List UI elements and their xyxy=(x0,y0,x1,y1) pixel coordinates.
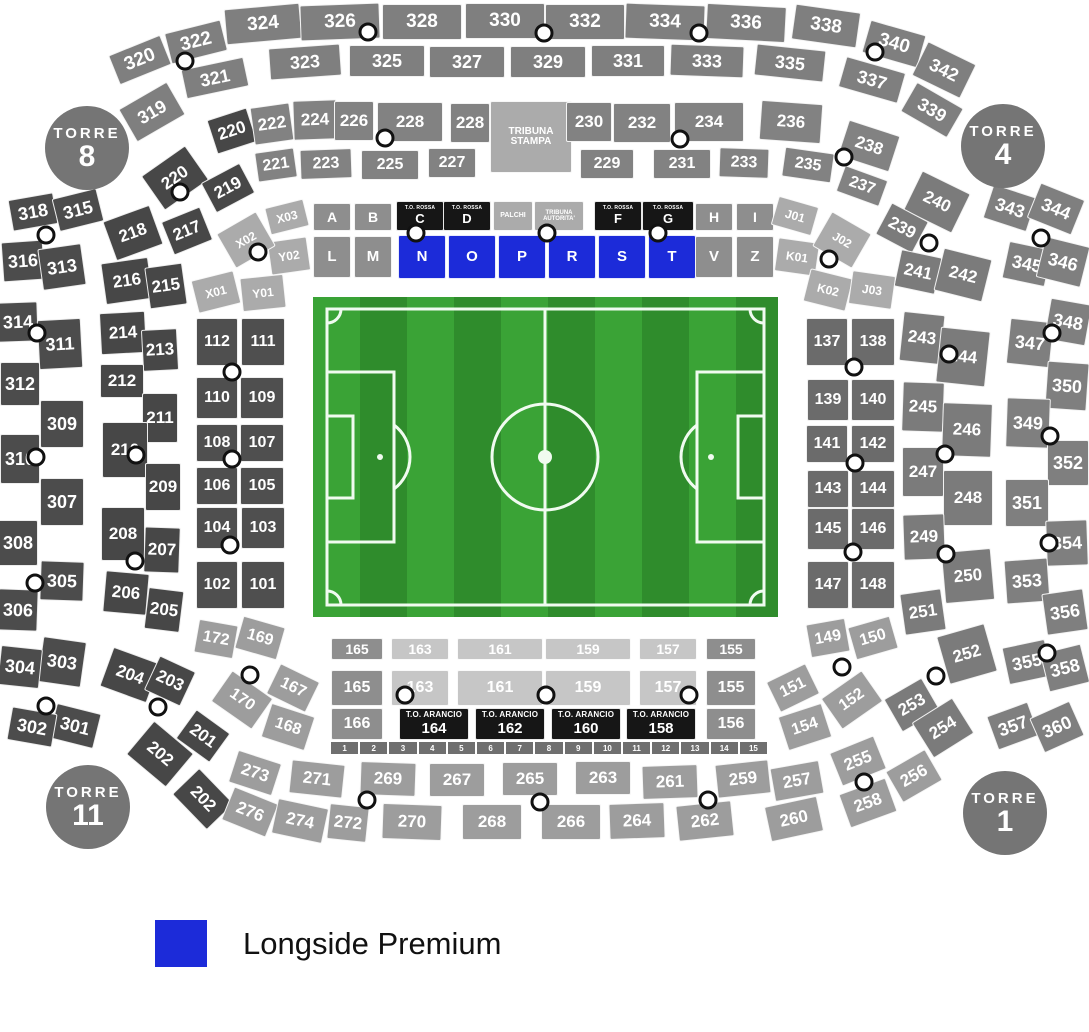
section-323[interactable]: 323 xyxy=(268,44,342,81)
section-label: 226 xyxy=(340,112,368,130)
section-352[interactable]: 352 xyxy=(1047,440,1089,486)
section-245[interactable]: 245 xyxy=(901,381,945,432)
section-312[interactable]: 312 xyxy=(0,362,40,406)
section-266[interactable]: 266 xyxy=(541,804,601,840)
section-y01[interactable]: Y01 xyxy=(239,274,286,312)
section-j03[interactable]: J03 xyxy=(848,270,896,310)
section-label: 309 xyxy=(47,415,77,434)
section-330[interactable]: 330 xyxy=(465,3,545,39)
section-label: 338 xyxy=(809,14,843,38)
section-label: D xyxy=(462,212,471,226)
section-332[interactable]: 332 xyxy=(545,4,625,40)
section-155[interactable]: 155 xyxy=(706,638,756,660)
gate-marker-icon xyxy=(866,43,885,62)
section-163[interactable]: 163 xyxy=(391,638,449,660)
section-260[interactable]: 260 xyxy=(764,796,824,842)
section-label: 143 xyxy=(815,481,842,498)
section-103[interactable]: 103 xyxy=(241,507,285,549)
section-336[interactable]: 336 xyxy=(705,3,787,43)
gate-marker-icon xyxy=(1038,644,1057,663)
section-label: 251 xyxy=(908,601,939,623)
section-229[interactable]: 229 xyxy=(580,149,634,179)
gate-marker-icon xyxy=(649,224,668,243)
gate-marker-icon xyxy=(376,129,395,148)
section-label: 154 xyxy=(790,715,821,739)
section-237[interactable]: 237 xyxy=(836,165,889,207)
section-label: 243 xyxy=(907,328,937,349)
section-label: G xyxy=(663,212,673,226)
gate-marker-icon xyxy=(699,791,718,810)
legend: Longside Premium xyxy=(155,920,501,967)
section-360[interactable]: 360 xyxy=(1029,701,1085,754)
gate-marker-icon xyxy=(26,574,45,593)
section-a[interactable]: A xyxy=(313,203,351,231)
section-324[interactable]: 324 xyxy=(224,3,303,45)
seat-strip-cell[interactable]: 7 xyxy=(505,741,534,755)
section-m[interactable]: M xyxy=(354,236,392,278)
section-label: O xyxy=(466,249,478,265)
section-label: 156 xyxy=(718,716,745,733)
gate-marker-icon xyxy=(223,450,242,469)
gate-marker-icon xyxy=(844,543,863,562)
section-161[interactable]: 161 xyxy=(457,670,543,706)
section-label: M xyxy=(367,249,380,265)
section-v[interactable]: V xyxy=(695,236,733,278)
gate-marker-icon xyxy=(690,24,709,43)
section-label: 323 xyxy=(289,52,320,73)
section-label: 271 xyxy=(302,769,332,790)
section-350[interactable]: 350 xyxy=(1044,361,1089,412)
section-344[interactable]: 344 xyxy=(1027,182,1086,235)
section-101[interactable]: 101 xyxy=(241,561,285,609)
section-261[interactable]: 261 xyxy=(641,764,698,800)
section-label: 260 xyxy=(778,807,809,830)
section-label: 235 xyxy=(794,155,823,175)
section-111[interactable]: 111 xyxy=(241,318,285,366)
gate-marker-icon xyxy=(28,324,47,343)
section-105[interactable]: 105 xyxy=(240,467,284,505)
section-label: 252 xyxy=(951,642,983,667)
section-label: 219 xyxy=(211,173,244,202)
section-215[interactable]: 215 xyxy=(144,263,187,310)
section-223[interactable]: 223 xyxy=(299,148,352,180)
seat-strip-cell[interactable]: 5 xyxy=(447,741,476,755)
section-label: 111 xyxy=(251,334,276,351)
section-label: 223 xyxy=(312,155,339,173)
section-152[interactable]: 152 xyxy=(821,670,884,730)
section-267[interactable]: 267 xyxy=(429,763,485,797)
section-356[interactable]: 356 xyxy=(1041,588,1088,635)
section-139[interactable]: 139 xyxy=(807,379,849,421)
section-o[interactable]: O xyxy=(448,235,496,279)
section-label: 236 xyxy=(776,112,806,132)
section-265[interactable]: 265 xyxy=(502,762,558,796)
gate-marker-icon xyxy=(1043,324,1062,343)
section-313[interactable]: 313 xyxy=(37,243,86,291)
section-304[interactable]: 304 xyxy=(0,645,43,689)
seat-strip-cell[interactable]: 2 xyxy=(359,741,388,755)
section-l[interactable]: L xyxy=(313,236,351,278)
section-232[interactable]: 232 xyxy=(613,103,671,143)
section-236[interactable]: 236 xyxy=(759,100,824,144)
section-147[interactable]: 147 xyxy=(807,561,849,609)
section-label: 326 xyxy=(324,11,356,32)
section-209[interactable]: 209 xyxy=(145,463,181,511)
section-220[interactable]: 220 xyxy=(141,145,209,210)
section-337[interactable]: 337 xyxy=(838,56,906,104)
section-106[interactable]: 106 xyxy=(196,467,238,505)
section-217[interactable]: 217 xyxy=(161,206,213,255)
section-137[interactable]: 137 xyxy=(806,318,848,366)
section-218[interactable]: 218 xyxy=(102,205,163,262)
section-351[interactable]: 351 xyxy=(1005,479,1049,527)
section-110[interactable]: 110 xyxy=(196,377,238,419)
section-165[interactable]: 165 xyxy=(331,638,383,660)
section-338[interactable]: 338 xyxy=(791,4,861,49)
gate-marker-icon xyxy=(538,224,557,243)
section-label: 324 xyxy=(246,13,279,36)
section-label: I xyxy=(753,210,757,225)
section-143[interactable]: 143 xyxy=(807,470,849,508)
section-sublabel: T.O. ARANCIO xyxy=(482,711,538,719)
section-label: 320 xyxy=(122,45,159,75)
section-315[interactable]: 315 xyxy=(52,188,105,232)
tower-4: TORRE4 xyxy=(961,104,1045,188)
section-label: 103 xyxy=(250,520,277,537)
section-label: 303 xyxy=(46,651,78,674)
section-162[interactable]: T.O. ARANCIO162 xyxy=(475,708,545,740)
section-305[interactable]: 305 xyxy=(39,560,84,602)
section-label: 224 xyxy=(301,111,330,130)
seat-strip-cell[interactable]: 15 xyxy=(739,741,768,755)
section-333[interactable]: 333 xyxy=(669,44,744,79)
seat-strip-cell[interactable]: 6 xyxy=(476,741,505,755)
section-label: 161 xyxy=(487,680,514,697)
section-label: 315 xyxy=(61,197,95,223)
section-label: 102 xyxy=(204,577,231,594)
section-x01[interactable]: X01 xyxy=(191,270,242,314)
section-225[interactable]: 225 xyxy=(361,150,419,180)
section-label: 264 xyxy=(623,812,652,831)
section-label: 201 xyxy=(186,720,219,751)
section-p[interactable]: P xyxy=(498,235,546,279)
section-327[interactable]: 327 xyxy=(429,46,505,78)
section-label: 255 xyxy=(842,747,875,774)
section-263[interactable]: 263 xyxy=(575,761,631,795)
section-158[interactable]: T.O. ARANCIO158 xyxy=(626,708,696,740)
section-271[interactable]: 271 xyxy=(288,759,345,798)
section-109[interactable]: 109 xyxy=(240,377,284,419)
section-224[interactable]: 224 xyxy=(292,99,337,141)
section-d[interactable]: T.O. ROSSAD xyxy=(443,201,491,231)
section-161[interactable]: 161 xyxy=(457,638,543,660)
pitch-right-penalty-spot xyxy=(708,454,714,460)
section-label: 165 xyxy=(345,642,368,657)
section-label: 301 xyxy=(58,713,92,739)
tower-word: TORRE xyxy=(53,125,120,142)
section-169[interactable]: 169 xyxy=(234,616,286,661)
section-label: 162 xyxy=(497,721,522,737)
section-150[interactable]: 150 xyxy=(847,616,899,661)
section-label: 202 xyxy=(187,783,220,816)
section-label: 248 xyxy=(954,489,982,507)
section-264[interactable]: 264 xyxy=(608,802,665,840)
section-319[interactable]: 319 xyxy=(118,82,185,143)
section-label: 346 xyxy=(1046,249,1080,275)
section-n[interactable]: N xyxy=(398,235,446,279)
section-221[interactable]: 221 xyxy=(254,147,298,182)
section-x03[interactable]: X03 xyxy=(264,199,310,236)
section-f[interactable]: T.O. ROSSAF xyxy=(594,201,642,231)
section-141[interactable]: 141 xyxy=(806,425,848,463)
section-label: 327 xyxy=(452,53,482,72)
section-251[interactable]: 251 xyxy=(899,588,946,635)
section-172[interactable]: 172 xyxy=(193,619,238,659)
section-140[interactable]: 140 xyxy=(851,379,895,421)
section-159[interactable]: 159 xyxy=(545,670,631,706)
section-label: 306 xyxy=(3,600,34,620)
section-label: P xyxy=(517,249,527,265)
section-label: Z xyxy=(750,249,759,265)
gate-marker-icon xyxy=(221,536,240,555)
section-label: 227 xyxy=(439,155,466,172)
section-219[interactable]: 219 xyxy=(201,163,256,214)
section-label: 331 xyxy=(613,52,643,71)
section-label: 159 xyxy=(576,642,599,657)
section-259[interactable]: 259 xyxy=(714,759,771,798)
gate-marker-icon xyxy=(1040,534,1059,553)
section-156[interactable]: 156 xyxy=(706,708,756,740)
section-label: 312 xyxy=(5,375,35,394)
gate-marker-icon xyxy=(833,658,852,677)
section-309[interactable]: 309 xyxy=(40,400,84,448)
section-label: 230 xyxy=(575,113,603,131)
tower-8: TORRE8 xyxy=(45,106,129,190)
section-sublabel: T.O. ROSSA xyxy=(452,206,482,211)
section-166[interactable]: 166 xyxy=(331,708,383,740)
section-label: 138 xyxy=(860,334,887,351)
section-label: 172 xyxy=(201,628,230,649)
section-i[interactable]: I xyxy=(736,203,774,231)
section-palchi[interactable]: PALCHI xyxy=(493,201,533,231)
gate-marker-icon xyxy=(927,667,946,686)
section-label: 157 xyxy=(656,642,679,657)
section-155[interactable]: 155 xyxy=(706,670,756,706)
section-label: 241 xyxy=(902,260,933,283)
section-112[interactable]: 112 xyxy=(196,318,238,366)
section-label: 347 xyxy=(1014,332,1046,354)
gate-marker-icon xyxy=(940,345,959,364)
section-label: 155 xyxy=(718,680,745,697)
section-212[interactable]: 212 xyxy=(100,364,144,398)
seat-strip-cell[interactable]: 4 xyxy=(418,741,447,755)
section-268[interactable]: 268 xyxy=(462,804,522,840)
gate-marker-icon xyxy=(936,445,955,464)
section-227[interactable]: 227 xyxy=(428,148,476,178)
section-label: 262 xyxy=(690,811,720,832)
section-206[interactable]: 206 xyxy=(102,570,149,616)
seat-strip-cell[interactable]: 13 xyxy=(680,741,709,755)
section-label: 109 xyxy=(249,390,276,407)
section-248[interactable]: 248 xyxy=(943,470,993,526)
section-233[interactable]: 233 xyxy=(718,147,769,179)
tower-word: TORRE xyxy=(969,123,1036,140)
section-306[interactable]: 306 xyxy=(0,588,39,631)
section-label: H xyxy=(709,210,719,225)
section-label: 276 xyxy=(234,798,267,825)
section-label: 140 xyxy=(860,392,887,409)
section-label: 202 xyxy=(143,738,176,770)
section-label: 209 xyxy=(149,478,177,496)
gate-marker-icon xyxy=(407,224,426,243)
section-102[interactable]: 102 xyxy=(196,561,238,609)
section-label: 328 xyxy=(406,12,438,32)
section-label: 217 xyxy=(171,217,204,244)
section-149[interactable]: 149 xyxy=(805,618,850,658)
section-label: 339 xyxy=(914,94,949,125)
football-pitch-svg xyxy=(313,297,778,617)
section-label: 208 xyxy=(109,525,137,543)
gate-marker-icon xyxy=(126,552,145,571)
section-label: 360 xyxy=(1039,712,1074,741)
gate-marker-icon xyxy=(223,363,242,382)
gate-marker-icon xyxy=(27,448,46,467)
section-335[interactable]: 335 xyxy=(754,43,827,82)
section-label: 158 xyxy=(648,721,673,737)
section-222[interactable]: 222 xyxy=(250,102,295,145)
seat-strip-cell[interactable]: 10 xyxy=(593,741,622,755)
section-205[interactable]: 205 xyxy=(144,587,185,633)
section-j01[interactable]: J01 xyxy=(771,196,820,236)
section-label: 107 xyxy=(249,435,276,452)
section-164[interactable]: T.O. ARANCIO164 xyxy=(399,708,469,740)
section-230[interactable]: 230 xyxy=(566,102,612,142)
legend-label: Longside Premium xyxy=(243,926,501,962)
section-214[interactable]: 214 xyxy=(99,311,147,355)
section-label: 168 xyxy=(273,715,304,739)
section-274[interactable]: 274 xyxy=(271,798,329,844)
section-label: 249 xyxy=(910,528,939,547)
section-331[interactable]: 331 xyxy=(591,45,665,77)
section-tribuna-stampa[interactable]: TRIBUNA STAMPA xyxy=(490,101,572,173)
section-label: J01 xyxy=(784,207,807,225)
gate-marker-icon xyxy=(845,358,864,377)
section-label: 242 xyxy=(947,263,979,287)
section-label: 337 xyxy=(855,67,889,93)
section-label: 207 xyxy=(148,541,177,560)
seat-strip-cell[interactable]: 11 xyxy=(622,741,651,755)
section-label: 350 xyxy=(1051,376,1082,397)
section-145[interactable]: 145 xyxy=(807,508,849,550)
section-label: 256 xyxy=(897,761,930,791)
gate-marker-icon xyxy=(671,130,690,149)
seat-strip-cell[interactable]: 8 xyxy=(534,741,563,755)
section-label: 311 xyxy=(45,334,75,354)
section-320[interactable]: 320 xyxy=(108,35,172,86)
section-label: 149 xyxy=(813,627,842,648)
seat-strip-cell[interactable]: 3 xyxy=(388,741,417,755)
section-label: 335 xyxy=(774,52,806,74)
section-label: T xyxy=(667,249,676,265)
section-label: 163 xyxy=(408,642,431,657)
section-303[interactable]: 303 xyxy=(37,636,87,688)
tower-1: TORRE1 xyxy=(963,771,1047,855)
section-160[interactable]: T.O. ARANCIO160 xyxy=(551,708,621,740)
gate-marker-icon xyxy=(531,793,550,812)
section-322[interactable]: 322 xyxy=(164,19,228,64)
gate-marker-icon xyxy=(37,226,56,245)
section-label: K01 xyxy=(785,249,809,265)
section-label: 349 xyxy=(1013,413,1044,433)
section-label: 356 xyxy=(1049,601,1081,624)
section-label: J02 xyxy=(830,230,854,251)
gate-marker-icon xyxy=(171,183,190,202)
section-label: 321 xyxy=(198,66,231,91)
section-329[interactable]: 329 xyxy=(510,46,586,78)
section-label: 357 xyxy=(996,712,1031,740)
section-label: 106 xyxy=(204,478,231,495)
section-label: 144 xyxy=(860,481,887,498)
section-231[interactable]: 231 xyxy=(653,149,711,179)
section-label: L xyxy=(327,249,336,265)
section-157[interactable]: 157 xyxy=(639,638,697,660)
section-213[interactable]: 213 xyxy=(141,328,179,372)
section-242[interactable]: 242 xyxy=(933,248,992,303)
gate-marker-icon xyxy=(127,446,146,465)
section-h[interactable]: H xyxy=(695,203,733,231)
section-s[interactable]: S xyxy=(598,235,646,279)
section-z[interactable]: Z xyxy=(736,236,774,278)
section-228[interactable]: 228 xyxy=(450,103,490,143)
section-168[interactable]: 168 xyxy=(261,703,316,751)
section-328[interactable]: 328 xyxy=(382,4,462,40)
section-label: 342 xyxy=(926,55,961,85)
section-r[interactable]: R xyxy=(548,235,596,279)
section-label: 222 xyxy=(257,113,288,135)
section-307[interactable]: 307 xyxy=(40,478,84,526)
section-308[interactable]: 308 xyxy=(0,520,38,566)
section-107[interactable]: 107 xyxy=(240,424,284,462)
section-label: 325 xyxy=(372,52,402,71)
section-144[interactable]: 144 xyxy=(851,470,895,508)
section-label: 110 xyxy=(204,390,230,407)
seat-strip-cell[interactable]: 14 xyxy=(710,741,739,755)
seat-strip-cell[interactable]: 12 xyxy=(651,741,680,755)
section-270[interactable]: 270 xyxy=(381,803,442,841)
seat-strip-cell[interactable]: 9 xyxy=(564,741,593,755)
section-207[interactable]: 207 xyxy=(143,526,181,573)
section-label: 229 xyxy=(594,156,621,173)
section-label: 211 xyxy=(146,409,173,427)
section-325[interactable]: 325 xyxy=(349,45,425,77)
section-label: 212 xyxy=(108,372,136,390)
gate-marker-icon xyxy=(396,686,415,705)
section-165[interactable]: 165 xyxy=(331,670,383,706)
section-226[interactable]: 226 xyxy=(334,101,374,141)
section-label: 141 xyxy=(814,436,841,453)
section-159[interactable]: 159 xyxy=(545,638,631,660)
section-301[interactable]: 301 xyxy=(48,703,101,749)
section-k02[interactable]: K02 xyxy=(803,268,854,312)
section-label: B xyxy=(368,210,378,225)
section-label: 273 xyxy=(239,760,272,786)
seat-strip-cell[interactable]: 1 xyxy=(330,741,359,755)
section-148[interactable]: 148 xyxy=(851,561,895,609)
section-235[interactable]: 235 xyxy=(781,147,835,184)
section-label: 307 xyxy=(47,493,77,512)
section-b[interactable]: B xyxy=(354,203,392,231)
section-label: 150 xyxy=(858,626,888,650)
